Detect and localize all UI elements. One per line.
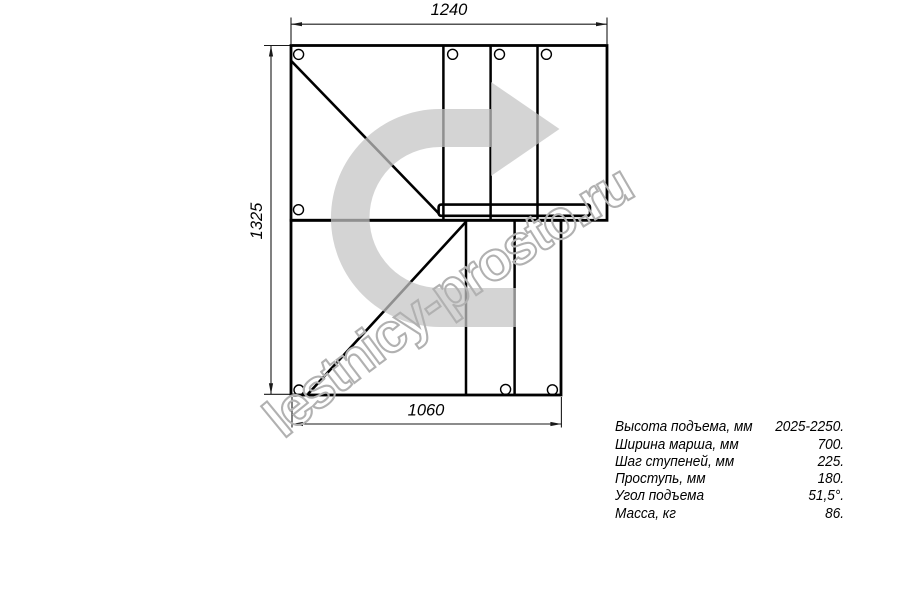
- svg-text:1060: 1060: [408, 402, 446, 420]
- svg-text:1325: 1325: [248, 202, 266, 240]
- svg-text:1240: 1240: [431, 1, 469, 19]
- svg-text:lestnicy-prosto.ru: lestnicy-prosto.ru: [252, 151, 644, 448]
